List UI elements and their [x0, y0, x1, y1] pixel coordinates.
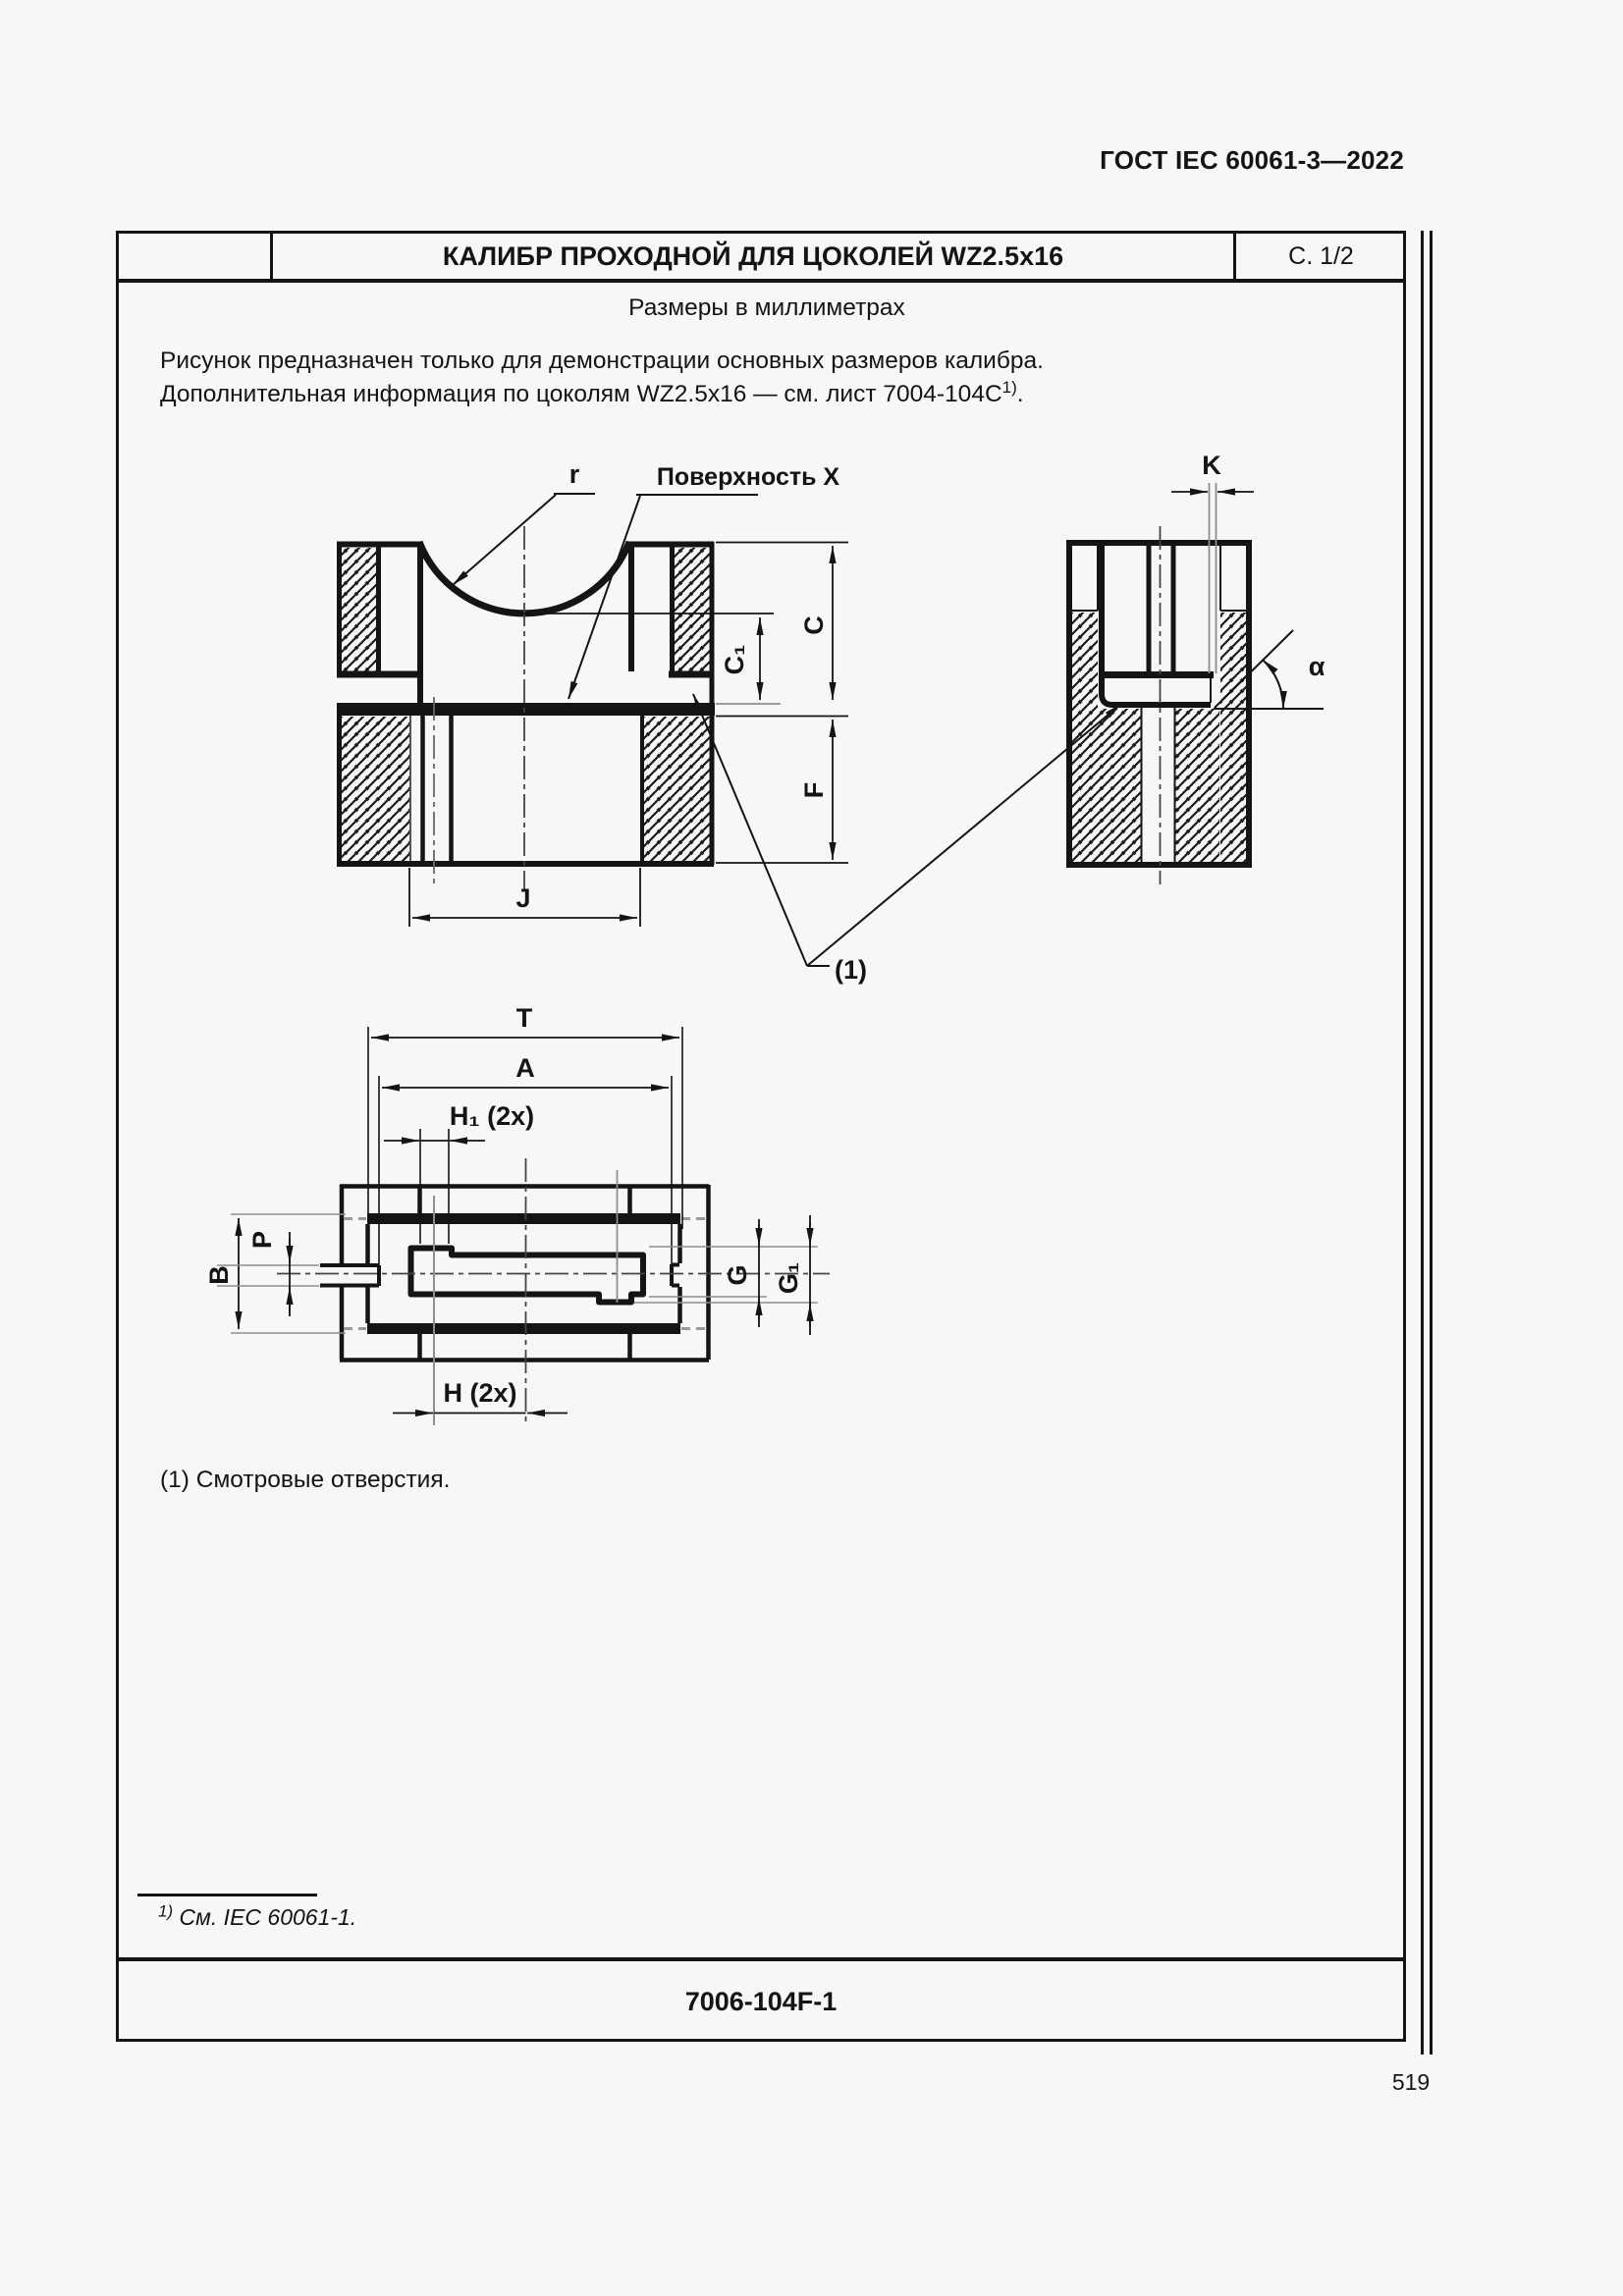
dim-label-h1: H₁ (2x) — [450, 1101, 534, 1131]
dim-label-a: A — [515, 1053, 535, 1083]
dim-label-f: F — [799, 782, 829, 799]
dim-label-g: G — [723, 1264, 752, 1285]
dim-label-j: J — [515, 883, 530, 913]
dim-label-h: H (2x) — [443, 1378, 516, 1408]
page: { "page": { "header": "ГОСТ IEC 60061-3—… — [0, 0, 1623, 2296]
dim-label-p: P — [247, 1231, 277, 1249]
dim-label-b: B — [204, 1265, 234, 1285]
gauge-drawing: C C₁ F J r Поверхность X (1) — [0, 0, 1623, 2296]
dim-label-t: T — [516, 1003, 533, 1033]
dim-label-c: C — [799, 615, 829, 635]
dim-label-c1: C₁ — [720, 645, 749, 675]
front-view — [337, 526, 715, 889]
dim-label-k: K — [1202, 451, 1221, 480]
top-view — [277, 1158, 830, 1425]
label-surface-x: Поверхность X — [657, 463, 840, 491]
side-view-hatching — [1072, 613, 1246, 862]
label-callout-1: (1) — [835, 955, 867, 985]
label-radius-r: r — [569, 459, 580, 489]
dim-label-g1: G₁ — [774, 1262, 803, 1294]
leader-lines — [453, 494, 1121, 966]
side-view — [1069, 483, 1249, 884]
dim-label-alpha: α — [1309, 652, 1325, 681]
